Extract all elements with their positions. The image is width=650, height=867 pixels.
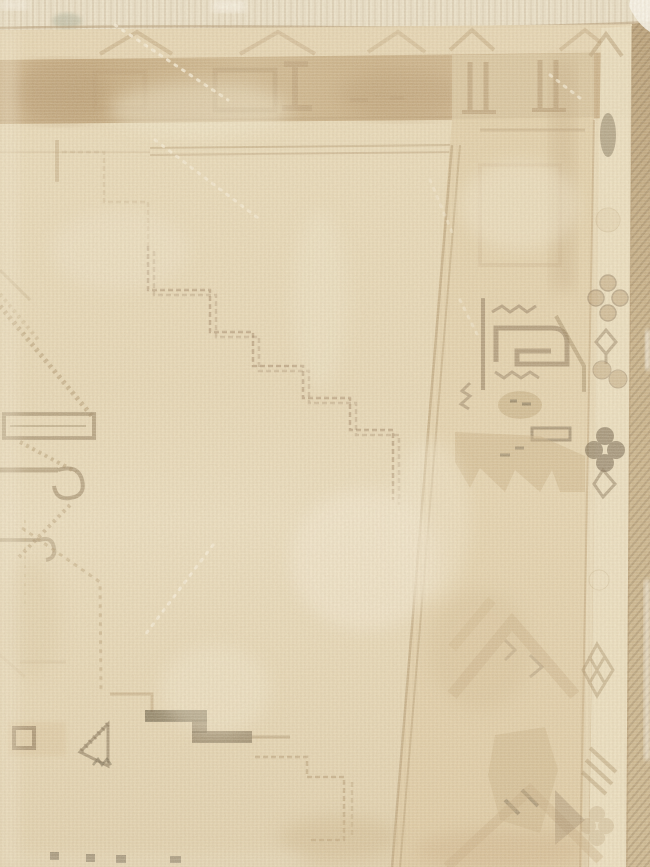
rug-canvas — [0, 0, 650, 867]
rug-photo — [0, 0, 650, 867]
field-grain-light — [0, 0, 650, 867]
